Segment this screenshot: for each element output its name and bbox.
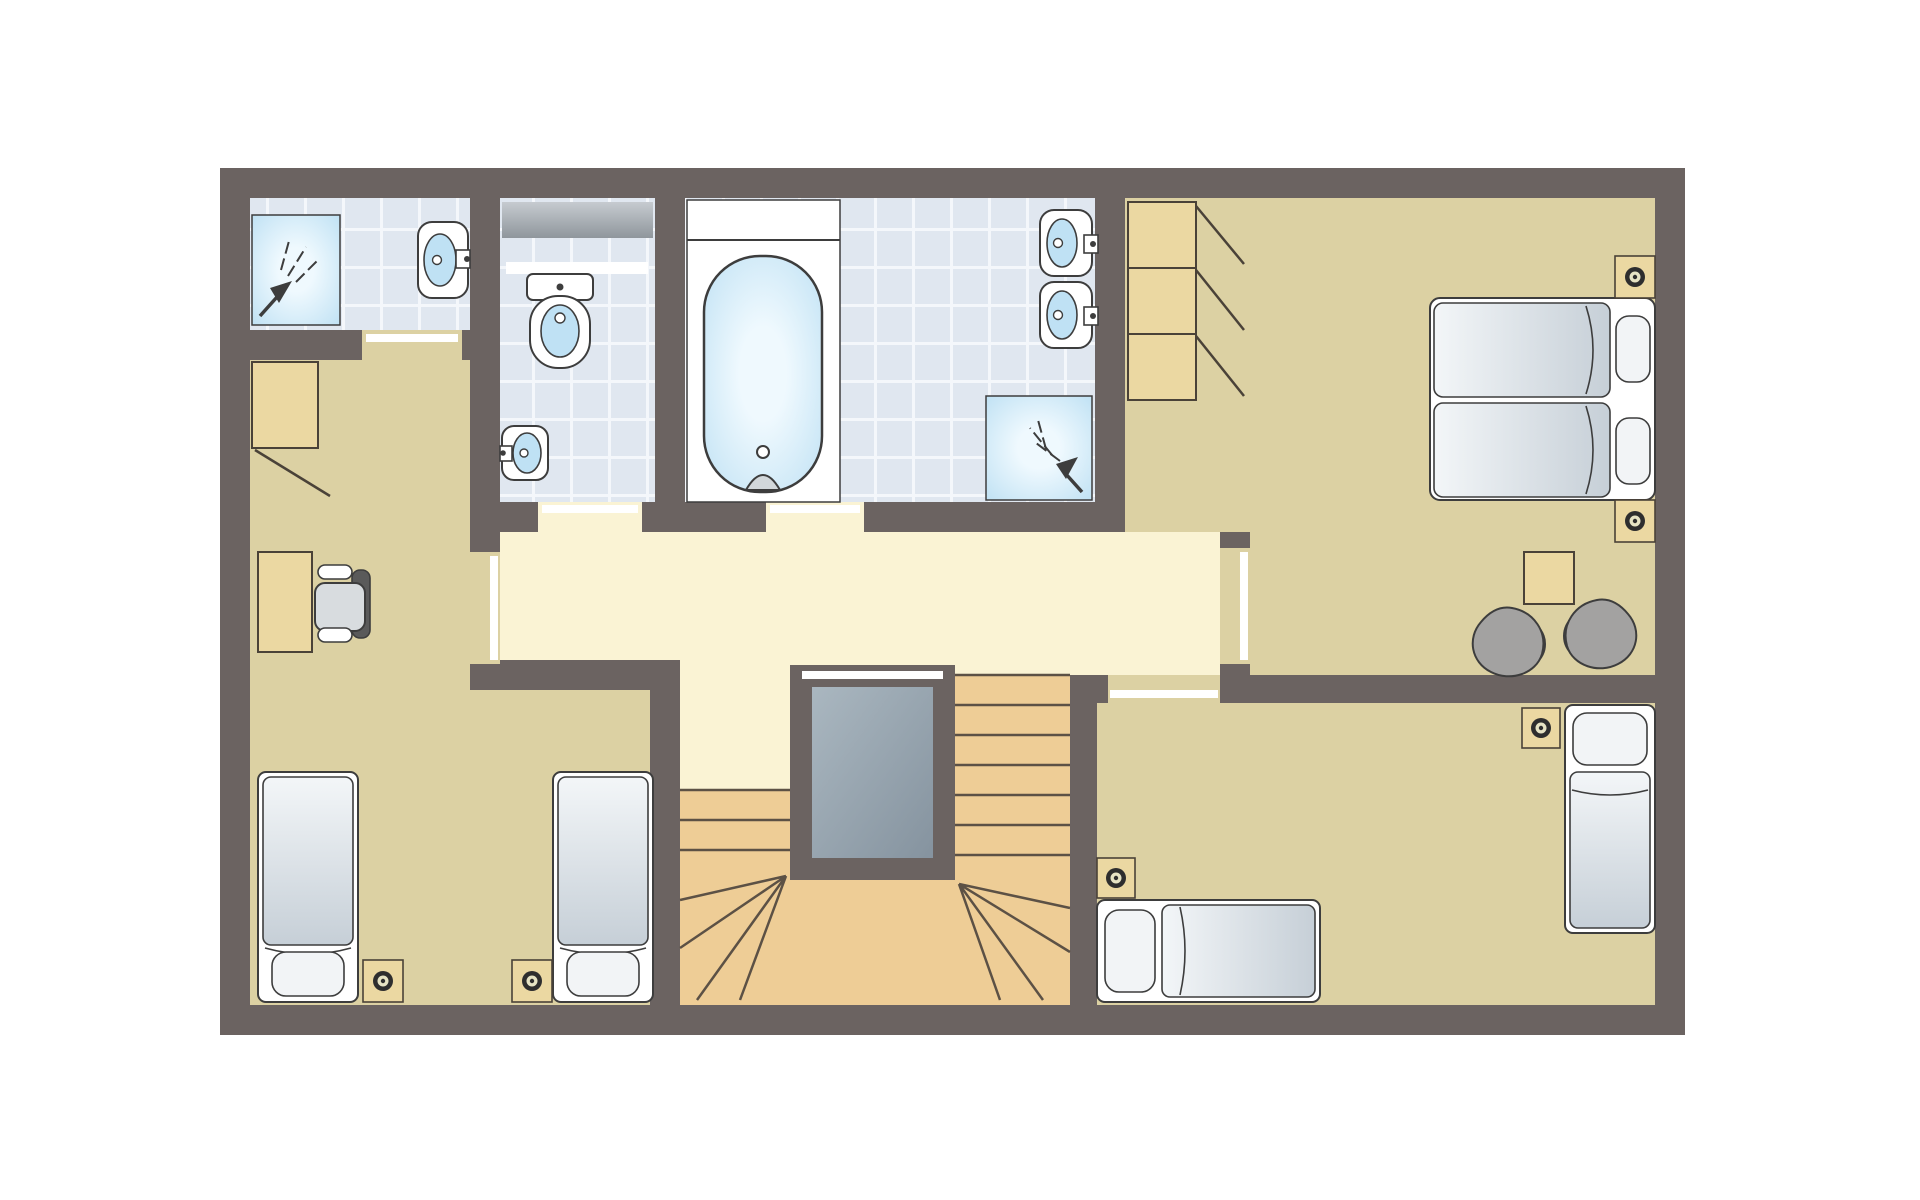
washbasin	[1040, 282, 1098, 348]
pillow	[1616, 418, 1650, 484]
nightstand	[1522, 708, 1560, 748]
door-leaf-bedroom-top-right	[1240, 552, 1248, 660]
door-leaf-wc	[542, 505, 638, 513]
toilet	[527, 274, 593, 368]
washbasin	[418, 222, 470, 298]
chair-seat	[315, 583, 365, 631]
mattress	[558, 777, 648, 945]
mattress	[263, 777, 353, 945]
floor-plan	[0, 0, 1920, 1200]
mattress	[1434, 403, 1610, 497]
counter	[502, 202, 653, 238]
desk	[258, 552, 312, 652]
mattress	[1434, 303, 1610, 397]
chair-armrest	[318, 628, 352, 642]
nightstand	[1097, 858, 1135, 898]
stairwell-void	[812, 687, 933, 858]
chair-armrest	[318, 565, 352, 579]
side-table	[1524, 552, 1574, 604]
door-leaf-bedroom-left	[490, 556, 498, 660]
nightstand	[1615, 500, 1655, 542]
pillow	[1573, 713, 1647, 765]
corner-washbasin	[500, 426, 548, 480]
shelf	[506, 262, 648, 274]
door-leaf-bedroom-bottom-right	[1110, 690, 1218, 698]
nightstand	[1615, 256, 1655, 298]
door-leaf-shower-room	[366, 334, 458, 342]
pillow	[272, 952, 344, 996]
single-bed	[553, 772, 653, 1002]
pillow	[1616, 316, 1650, 382]
pillow	[567, 952, 639, 996]
single-bed	[1565, 705, 1655, 933]
single-bed	[258, 772, 358, 1002]
pillow	[1105, 910, 1155, 992]
nightstand	[363, 960, 403, 1002]
nightstand	[512, 960, 552, 1002]
office-chair	[315, 565, 370, 642]
door-leaf-bathroom	[770, 505, 860, 513]
door-opening-bedroom-bottom-right	[1108, 675, 1220, 703]
single-bed	[1097, 900, 1320, 1002]
double-bed	[1430, 298, 1655, 500]
stair-railing	[802, 671, 943, 679]
washbasin	[1040, 210, 1098, 276]
